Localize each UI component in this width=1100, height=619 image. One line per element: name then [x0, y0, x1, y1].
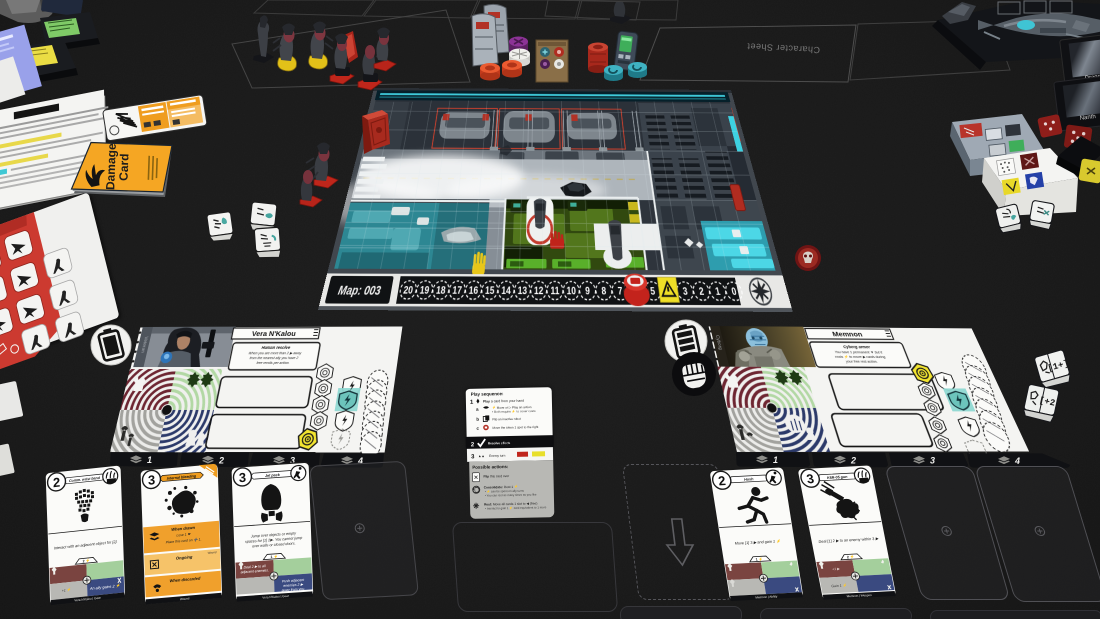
svg-text:3: 3: [930, 456, 935, 466]
svg-text:1: 1: [147, 455, 152, 465]
svg-text:Map: 003: Map: 003: [337, 284, 383, 298]
svg-text:Move the token 1 spot to the r: Move the token 1 spot to the right: [492, 425, 538, 430]
svg-text:14: 14: [501, 286, 511, 297]
svg-text:1: 1: [773, 455, 778, 465]
svg-text:Resolve effects: Resolve effects: [488, 441, 511, 445]
svg-text:3: 3: [471, 454, 475, 460]
svg-text:1 ⚡: 1 ⚡: [755, 556, 763, 561]
svg-text:16: 16: [468, 286, 478, 297]
svg-text:Flip an inactive robot: Flip an inactive robot: [492, 417, 521, 422]
svg-text:9: 9: [585, 287, 590, 298]
svg-text:15: 15: [485, 286, 495, 297]
svg-text:Wound: Wound: [180, 596, 190, 601]
svg-text:Card: Card: [117, 153, 132, 181]
svg-text:Possible actions:: Possible actions:: [472, 464, 509, 470]
svg-text:20: 20: [402, 286, 413, 297]
svg-text:Cyborg armor: Cyborg armor: [843, 345, 872, 349]
svg-text:• Both require ⚡ to cover cost: • Both require ⚡ to cover costs: [492, 409, 536, 414]
svg-text:Wound: Wound: [208, 550, 217, 555]
svg-text:b: b: [476, 417, 479, 422]
svg-text:+1 ▶: +1 ▶: [832, 567, 841, 571]
svg-text:a: a: [476, 407, 479, 412]
svg-text:+1 ⚡: +1 ⚡: [62, 587, 72, 593]
svg-text:Human resolve: Human resolve: [261, 346, 290, 350]
svg-text:Hush: Hush: [744, 477, 755, 481]
svg-text:12: 12: [534, 287, 544, 298]
svg-text:2: 2: [53, 474, 61, 490]
svg-text:free rerolls per action.: free rerolls per action.: [256, 361, 290, 365]
svg-text:11: 11: [551, 287, 560, 298]
svg-text:2 ⚡: 2 ⚡: [846, 554, 854, 559]
svg-text:19: 19: [419, 286, 430, 297]
svg-text:Vera N'Kalou: Vera N'Kalou: [251, 331, 296, 339]
svg-text:When you are more than 2 ▶ awa: When you are more than 2 ▶ away: [248, 351, 302, 355]
svg-text:2 ⚡: 2 ⚡: [82, 558, 90, 564]
svg-text:▲▲: ▲▲: [478, 454, 485, 458]
svg-text:Enemy turn: Enemy turn: [489, 454, 506, 458]
svg-text:• Interact to gain 1 ⚡ card eq: • Interact to gain 1 ⚡ card equivalent t…: [485, 505, 547, 510]
svg-text:3: 3: [148, 472, 156, 488]
svg-text:13: 13: [518, 286, 528, 297]
svg-text:Play sequence:: Play sequence:: [471, 391, 504, 397]
svg-text:7: 7: [617, 287, 623, 298]
svg-text:from the nearest ally you have: from the nearest ally you have 2: [249, 356, 299, 360]
svg-text:10: 10: [566, 287, 576, 298]
svg-text:Memnon: Memnon: [832, 331, 864, 338]
svg-text:your free rest action.: your free rest action.: [844, 359, 878, 363]
svg-text:Flip this card over: Flip this card over: [483, 474, 510, 479]
svg-text:2: 2: [850, 455, 856, 465]
svg-text:1 ⚡: 1 ⚡: [270, 554, 278, 560]
svg-text:3: 3: [239, 470, 247, 485]
svg-text:1: 1: [470, 400, 474, 406]
svg-text:2: 2: [471, 442, 475, 448]
svg-text:c: c: [476, 426, 479, 431]
svg-text:• You can rest as many times a: • You can rest as many times as you like: [485, 492, 537, 497]
svg-text:Play a card from your hand: Play a card from your hand: [483, 399, 524, 404]
svg-text:18: 18: [435, 286, 446, 297]
svg-text:17: 17: [452, 286, 463, 297]
svg-text:4: 4: [1014, 456, 1020, 466]
svg-text:Gain 1 ⚡: Gain 1 ⚡: [831, 583, 848, 589]
svg-text:8: 8: [601, 287, 607, 298]
